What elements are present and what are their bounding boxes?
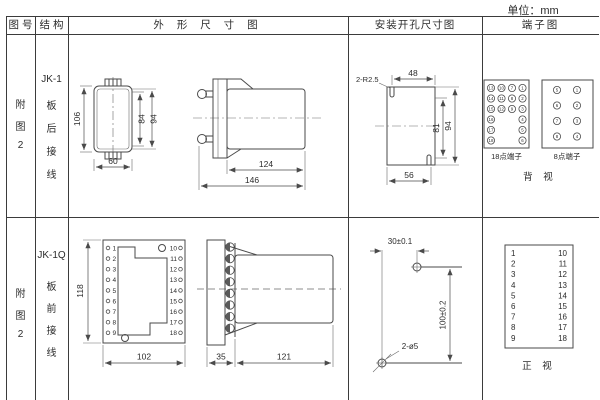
terminal-number: 17 [489,128,494,133]
terminal-number: 5 [556,88,559,93]
row1-terminal-diagram: 13 14 15 16 17 18 10 11 12 7 8 9 1 2 3 4… [480,72,600,190]
dim-label-94: 94 [149,114,159,124]
terminal-numbers-left: 1 2 3 4 5 6 7 8 9 [511,249,516,343]
dim-label-100: 100±0.2 [439,300,448,329]
dim-label-56: 56 [404,170,414,180]
terminal-number: 10 [170,245,178,252]
dim-label-106: 106 [72,112,82,126]
row2-mounting-drawing: 30±0.1 100±0.2 2-ø5 [350,225,480,390]
terminal-number: 14 [489,96,494,101]
view-label-front: 正 视 [522,360,556,372]
terminal-numbers-right: 10 11 12 13 14 15 16 17 18 [558,249,567,343]
terminal-number: 14 [170,288,178,295]
row1-figure-char: 2 [6,140,35,151]
dim-label-35: 35 [216,352,226,362]
dimensions: 118 102 [75,240,185,367]
dimensions: 124 146 [199,146,305,190]
terminal-number: 14 [558,291,567,300]
row2-front-view-drawing: 1 2 3 4 5 6 7 8 9 10 11 12 13 14 15 16 1… [70,225,202,375]
row2-figure-char: 2 [6,329,35,340]
dim-label-84: 84 [137,114,147,124]
table-top-border [6,16,599,17]
row1-structure-char: 接 [35,143,68,158]
terminal-number: 3 [576,119,579,124]
terminal-screw [198,90,207,99]
header-structure: 结 构 [35,19,68,31]
row1-front-view-drawing: 106 84 94 60 [70,55,205,200]
terminal-number: 10 [499,86,504,91]
terminal-number: 7 [556,119,559,124]
terminal-number: 15 [558,302,567,311]
terminal-block-18-label: 18点端子 [491,151,522,161]
left-terminals: 1 2 3 4 5 6 7 8 9 [106,245,116,337]
row2-figure-char: 图 [6,307,35,322]
dim-label-124: 124 [259,159,273,169]
col-divider-3 [348,16,349,400]
terminal-number: 6 [113,298,117,305]
header-terminal: 端子图 [482,19,599,31]
terminal-number: 15 [170,298,178,305]
header-figure-no: 图 号 [6,19,35,31]
terminal-number: 16 [170,309,178,316]
terminal-number: 8 [556,134,559,139]
terminal-number: 11 [170,256,177,263]
terminal-number: 17 [558,323,567,332]
terminal-number: 12 [558,270,567,279]
relay-side-outline [197,240,341,345]
terminal-grid-18: 13 14 15 16 17 18 10 11 12 7 8 9 1 2 3 4… [487,84,526,144]
row2-structure-char: 接 [35,322,68,337]
hole-layout [373,250,462,372]
row2-structure-model: JK-1Q [35,250,68,261]
terminal-screw-stack [226,243,234,333]
terminal-number: 1 [511,249,516,258]
terminal-number: 5 [113,288,117,295]
row1-structure-char: 线 [35,166,68,181]
row1-figure-char: 图 [6,118,35,133]
terminal-number: 2 [521,96,524,101]
terminal-number: 11 [499,96,504,101]
terminal-number: 18 [170,330,178,337]
terminal-number: 16 [558,313,567,322]
terminal-number: 3 [113,267,117,274]
row2-structure-char: 线 [35,344,68,359]
row2-terminal-diagram: 1 2 3 4 5 6 7 8 9 10 11 12 13 14 15 16 1… [495,235,600,385]
terminal-number: 3 [521,107,524,112]
dim-label-121: 121 [277,352,291,362]
terminal-number: 1 [113,245,117,252]
terminal-number: 8 [511,323,516,332]
terminal-block-8 [542,80,593,148]
header-outline: 外 形 尺 寸 图 [68,19,348,31]
terminal-number: 12 [170,267,178,274]
dim-label-146: 146 [245,175,259,185]
hole-diameter-label: 2-ø5 [402,342,419,351]
radius-label: 2-R2.5 [356,75,379,84]
terminal-number: 2 [576,103,579,108]
terminal-number: 8 [511,96,514,101]
terminal-number: 4 [511,281,516,290]
right-terminals: 10 11 12 13 14 15 16 17 18 [170,245,183,337]
terminal-number: 1 [521,86,524,91]
view-label-rear: 背 视 [523,171,557,183]
header-mounting: 安装开孔尺寸图 [348,19,482,31]
row-separator [6,217,599,218]
terminal-number: 11 [559,260,568,269]
terminal-number: 6 [556,103,559,108]
row1-side-view-drawing: 124 146 [193,56,345,196]
dimensions: 2-R2.5 48 81 94 56 [356,68,459,185]
terminal-number: 18 [489,138,494,143]
dim-label-60: 60 [108,156,118,166]
dim-label-30: 30±0.1 [388,237,413,246]
row1-mounting-drawing: 2-R2.5 48 81 94 56 [350,55,480,215]
mounting-hole [159,245,166,252]
col-divider-2 [68,16,69,400]
relay-side-outline [193,79,323,158]
terminal-number: 8 [113,320,117,327]
terminal-grid-8: 5 6 7 8 1 2 3 4 [553,86,580,140]
terminal-number: 2 [113,256,117,263]
row2-structure-char: 板 [35,278,68,293]
terminal-number: 3 [511,270,516,279]
terminal-number: 17 [170,320,178,327]
terminal-number: 13 [489,86,494,91]
row1-structure-char: 板 [35,97,68,112]
dimensions: 106 84 94 60 [72,86,159,171]
terminal-number: 12 [499,107,504,112]
terminal-number: 15 [489,107,494,112]
terminal-number: 13 [558,281,567,290]
row1-figure-char: 附 [6,96,35,111]
table-left-border [6,16,7,400]
terminal-number: 7 [511,313,516,322]
dim-label-48: 48 [408,68,418,78]
row2-figure-char: 附 [6,285,35,300]
terminal-number: 7 [511,86,514,91]
terminal-block-8-label: 8点端子 [554,151,581,161]
row2-structure-char: 前 [35,300,68,315]
dimensions: 35 121 [207,325,333,367]
row2-side-view-drawing: 35 121 [195,225,345,375]
terminal-number: 2 [511,260,516,269]
terminal-number: 5 [521,128,524,133]
terminal-number: 18 [558,334,567,343]
terminal-number: 13 [170,277,178,284]
terminal-number: 10 [558,249,567,258]
terminal-number: 4 [113,277,117,284]
terminal-number: 16 [489,117,494,122]
relay-front-outline [94,77,132,161]
dim-label-102: 102 [137,352,151,362]
mounting-hole [122,335,129,342]
terminal-number: 1 [576,88,579,93]
dim-label-118: 118 [75,284,85,298]
row1-structure-model: JK-1 [35,74,68,85]
terminal-number: 4 [576,134,579,139]
dim-label-94: 94 [443,121,453,131]
terminal-number: 5 [511,291,516,300]
terminal-number: 4 [521,117,524,122]
terminal-screw [198,135,207,144]
terminal-number: 6 [511,302,516,311]
terminal-number: 9 [511,334,516,343]
terminal-number: 6 [521,138,524,143]
terminal-number: 7 [113,309,117,316]
header-bottom-border [6,34,599,35]
row1-structure-char: 后 [35,120,68,135]
dim-label-81: 81 [431,123,441,133]
terminal-number: 9 [511,107,514,112]
terminal-number: 9 [113,330,117,337]
